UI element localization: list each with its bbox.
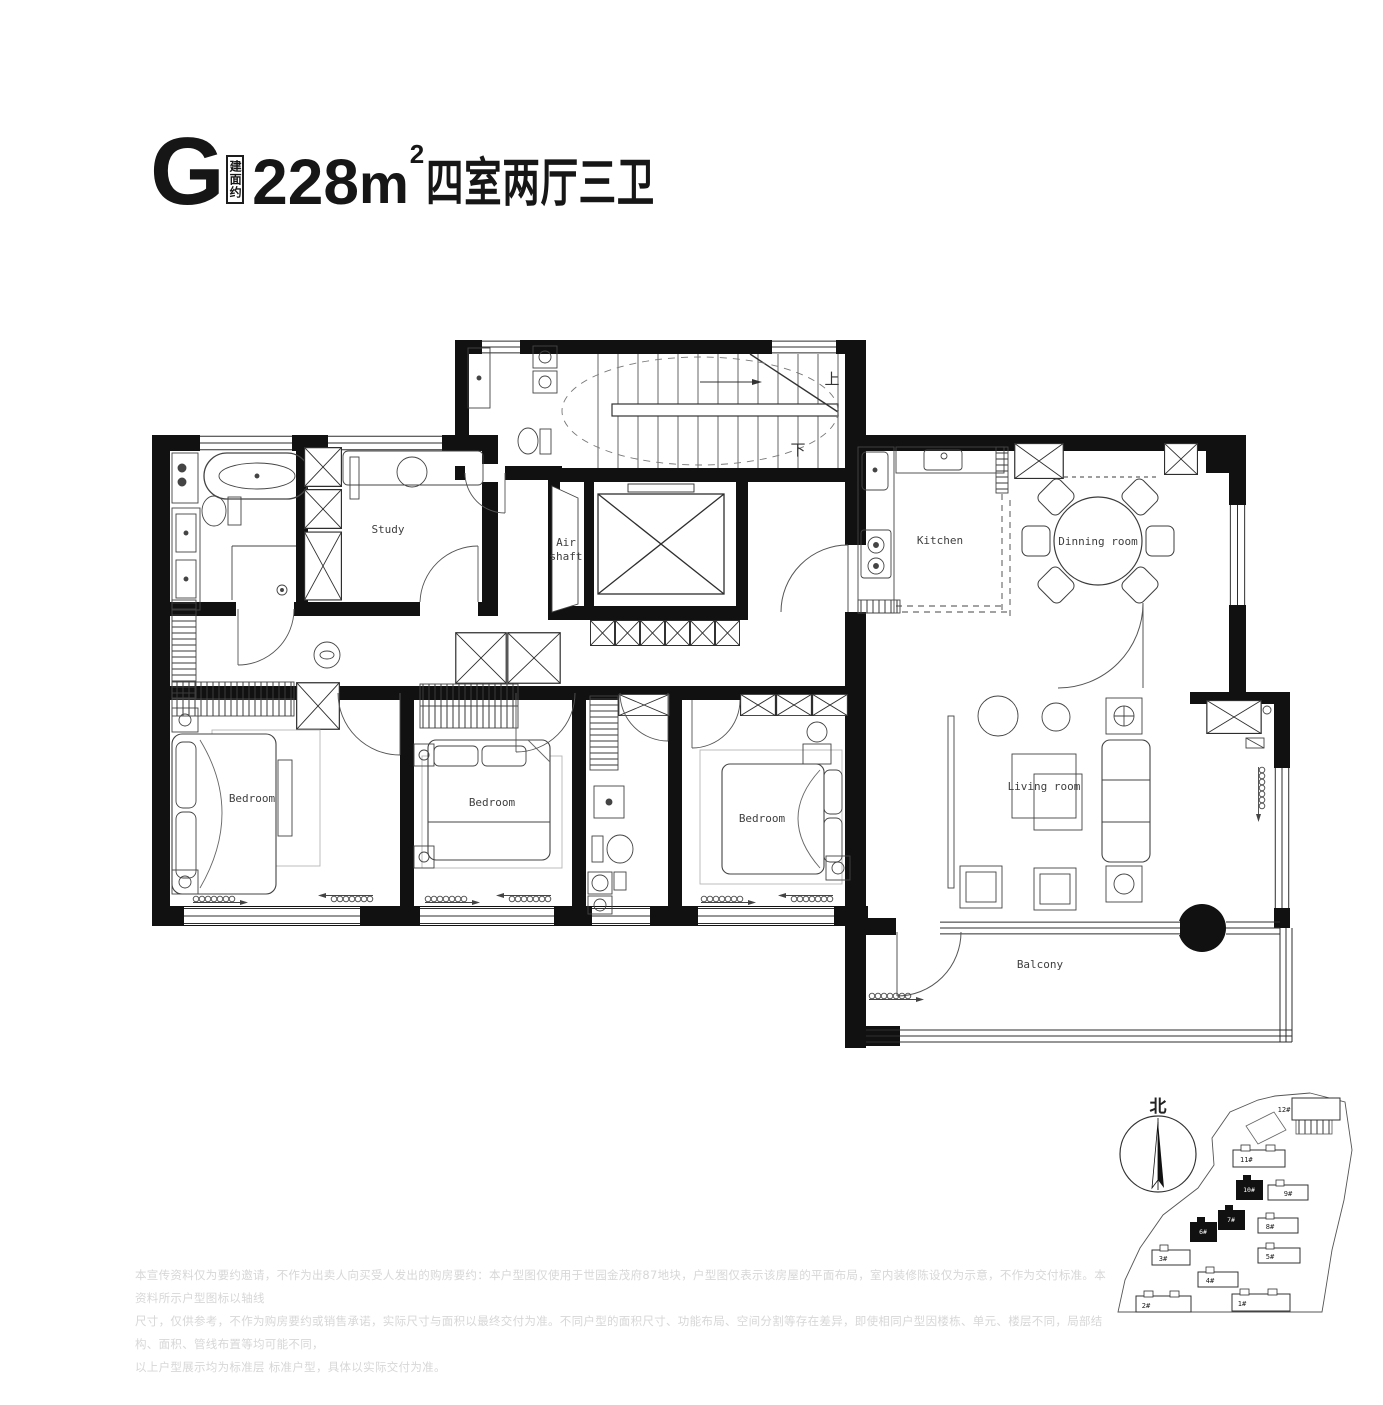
label-air-2: shaft bbox=[549, 550, 582, 563]
label-bedroom-left: Bedroom bbox=[229, 792, 276, 805]
unit-type-letter: G bbox=[150, 138, 223, 206]
site-building: 2# bbox=[1136, 1291, 1191, 1312]
label-balcony: Balcony bbox=[1017, 958, 1064, 971]
label-stairs-up: 上 bbox=[824, 370, 839, 388]
label-bedroom-middle: Bedroom bbox=[469, 796, 516, 809]
site-building: 1# bbox=[1232, 1289, 1290, 1311]
page-title: G 建面约 228 m2 四室两厅三卫 bbox=[150, 138, 744, 206]
floorplan-page: G 建面约 228 m2 四室两厅三卫 bbox=[0, 0, 1383, 1400]
air-shaft bbox=[552, 486, 578, 612]
site-building: 10# bbox=[1236, 1175, 1263, 1200]
compass: 北 bbox=[1120, 1097, 1196, 1192]
disclaimer-line-3: 以上户型展示均为标准层 标准户型，具体以实际交付为准。 bbox=[135, 1356, 1115, 1379]
compass-needle bbox=[1158, 1122, 1164, 1188]
label-bedroom-right: Bedroom bbox=[739, 812, 786, 825]
bldg-label: 6# bbox=[1199, 1228, 1207, 1236]
area-tag-box: 建面约 bbox=[226, 155, 245, 204]
dining-room bbox=[1015, 443, 1198, 605]
site-building: 4# bbox=[1198, 1267, 1238, 1287]
study-room bbox=[305, 448, 561, 684]
site-building: 12# bbox=[1278, 1098, 1340, 1120]
bldg-label: 8# bbox=[1266, 1223, 1275, 1231]
site-plan: 12# 11# 10# 9# 7# bbox=[1118, 1093, 1352, 1312]
label-kitchen: Kitchen bbox=[917, 534, 963, 547]
balcony-railing bbox=[866, 922, 1292, 1042]
site-building: 6# bbox=[1190, 1217, 1217, 1242]
living-room bbox=[948, 696, 1150, 910]
area-unit: m2 bbox=[359, 162, 424, 206]
disclaimer: 本宣传资料仅为要约邀请，不作为出卖人向买受人发出的购房要约：本户型图仅使用于世园… bbox=[135, 1264, 1115, 1379]
second-bath bbox=[588, 693, 669, 914]
label-air-1: Air bbox=[556, 536, 576, 549]
elevator bbox=[598, 484, 724, 594]
bldg-label: 11# bbox=[1240, 1156, 1253, 1164]
label-stairs-down: 下 bbox=[790, 441, 805, 459]
label-dining: Dinning room bbox=[1058, 535, 1138, 548]
kitchen-room bbox=[858, 447, 1010, 618]
elevator-grille bbox=[590, 620, 739, 645]
site-building: 7# bbox=[1218, 1205, 1245, 1230]
disclaimer-line-2: 尺寸，仅供参考，不作为购房要约或销售承诺，实际尺寸与面积以最终交付为准。不同户型… bbox=[135, 1310, 1115, 1356]
disclaimer-line-1: 本宣传资料仅为要约邀请，不作为出卖人向买受人发出的购房要约：本户型图仅使用于世园… bbox=[135, 1264, 1115, 1310]
balcony-door bbox=[897, 932, 961, 996]
compass-north-label: 北 bbox=[1150, 1097, 1167, 1117]
site-building: 8# bbox=[1258, 1213, 1298, 1233]
bldg-label: 4# bbox=[1206, 1277, 1215, 1285]
rooms-text: 四室两厅三卫 bbox=[426, 162, 655, 206]
bldg-label: 10# bbox=[1243, 1186, 1255, 1194]
bldg-label: 3# bbox=[1159, 1255, 1168, 1263]
area-value: 228 bbox=[252, 158, 359, 206]
label-living: Living room bbox=[1008, 780, 1081, 793]
site-building: 11# bbox=[1233, 1145, 1285, 1167]
bldg-label: 7# bbox=[1227, 1216, 1235, 1224]
site-building: 5# bbox=[1258, 1243, 1300, 1263]
site-building: 9# bbox=[1268, 1180, 1308, 1200]
area-exponent: 2 bbox=[410, 139, 424, 169]
bedroom-left bbox=[172, 682, 400, 894]
site-building: 3# bbox=[1152, 1245, 1190, 1265]
powder-room bbox=[465, 346, 557, 513]
bldg-label: 5# bbox=[1266, 1253, 1275, 1261]
label-study: Study bbox=[371, 523, 404, 536]
bedroom-right bbox=[692, 686, 850, 884]
foyer bbox=[1207, 701, 1271, 748]
bedroom-middle bbox=[414, 684, 575, 868]
bldg-label: 9# bbox=[1284, 1190, 1293, 1198]
bldg-label: 1# bbox=[1238, 1300, 1247, 1308]
bldg-label: 2# bbox=[1142, 1302, 1151, 1310]
bldg-label: 12# bbox=[1278, 1106, 1291, 1114]
